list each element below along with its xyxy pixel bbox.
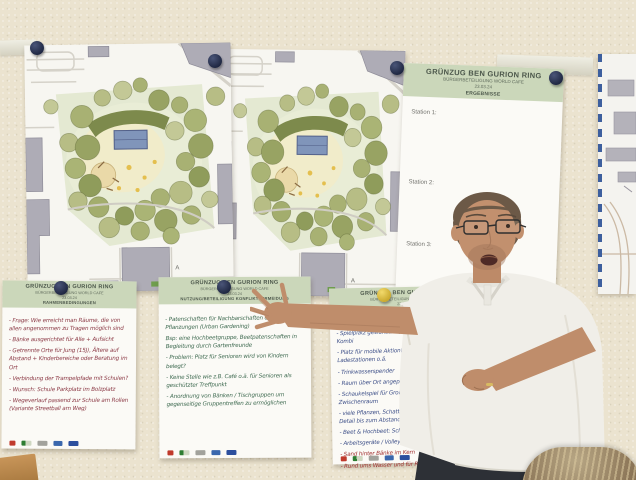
- partner-logo: [37, 441, 47, 446]
- flipchart-1-header: GRÜNZUG BEN GURION RING BÜRGERBETEILIGUN…: [2, 281, 136, 309]
- note-line: - Frage: Wie erreicht man Räume, die von…: [9, 317, 132, 334]
- flipchart-1-date: 23.03.24: [4, 295, 134, 301]
- eu-logo: [68, 441, 78, 446]
- site-plan-left: A: [24, 43, 233, 293]
- presenter-pointing-arm: [272, 303, 418, 335]
- push-pin-navy: [54, 281, 68, 295]
- push-pin-navy: [208, 54, 222, 68]
- push-pin-navy: [30, 41, 44, 55]
- city-logo: [167, 450, 173, 455]
- city-logo: [9, 441, 15, 446]
- green-partner-logo: [21, 441, 31, 446]
- ring: [486, 383, 493, 386]
- presenter-left-hand: [462, 369, 494, 391]
- presenter-person: [250, 175, 636, 480]
- blue-partner-logo: [53, 441, 62, 446]
- note-line: - Wegeverlauf passend zur Schule am Roll…: [9, 397, 132, 414]
- note-line: - Bänke ausgerichtet für Alle + Aufsicht: [9, 336, 132, 345]
- blue-partner-logo: [211, 450, 220, 455]
- plan-section-marker: A: [175, 265, 179, 271]
- push-pin-navy: [390, 61, 404, 75]
- note-line: - Verbindung der Trampelpfade mit Schule…: [9, 374, 132, 383]
- flipchart-1-partner-logos: [9, 441, 130, 447]
- push-pin-navy: [549, 71, 563, 85]
- note-line: - Wunsch: Schule Parkplatz im Bolzplatz: [9, 386, 132, 395]
- workshop-wall-photo: A A GRÜNZUG BEN GURION RING BÜRGERBETEIL…: [0, 0, 636, 480]
- green-partner-logo: [179, 450, 189, 455]
- results-poster-header: GRÜNZUG BEN GURION RING BÜRGERBETEILIGUN…: [403, 63, 564, 102]
- station-1-label: Station 1:: [411, 109, 437, 116]
- partner-logo: [195, 450, 205, 455]
- chair-edge: [0, 454, 39, 480]
- note-line: - Getrennte Orte für Jung (15J), Ältere …: [9, 347, 132, 372]
- push-pin-navy: [217, 280, 231, 294]
- presenter-head: [451, 192, 526, 270]
- flipchart-1-notes: - Frage: Wie erreicht man Räume, die von…: [9, 317, 132, 417]
- flipchart-1: GRÜNZUG BEN GURION RING BÜRGERBETEILIGUN…: [1, 281, 136, 450]
- eu-logo: [226, 450, 236, 455]
- flipchart-1-section: RAHMENBEDINGUNGEN: [4, 300, 134, 306]
